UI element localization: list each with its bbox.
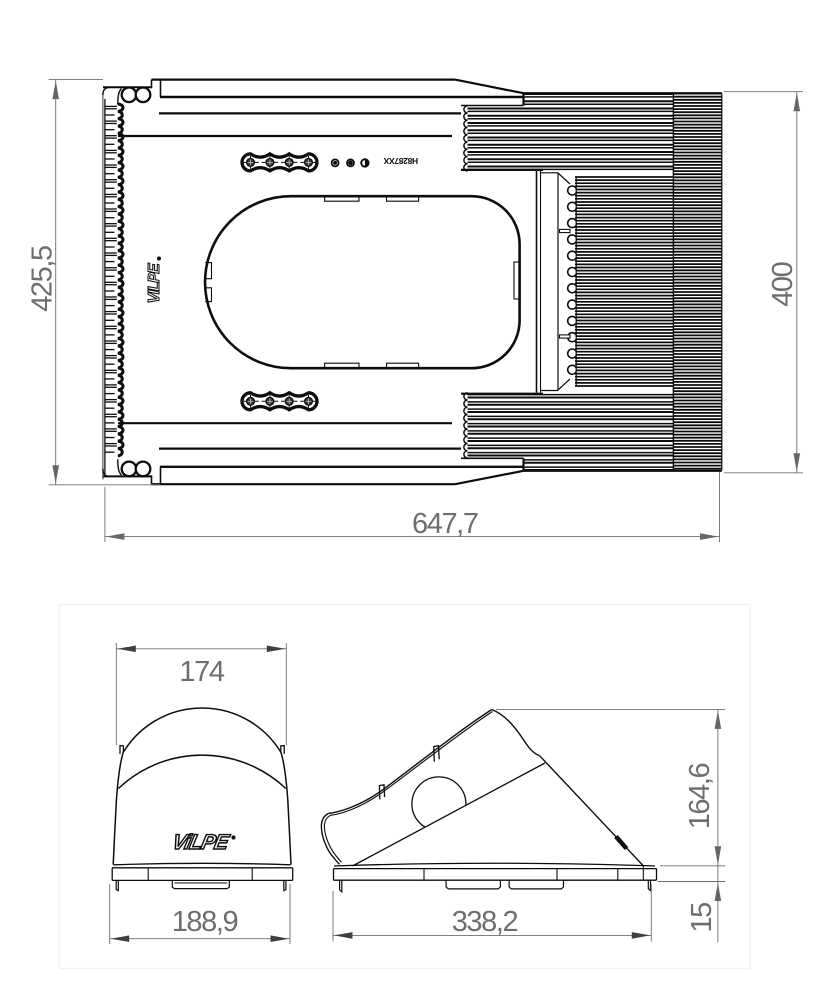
- svg-text:H8287XX: H8287XX: [383, 156, 418, 166]
- svg-text:164,6: 164,6: [684, 763, 716, 829]
- svg-text:338,2: 338,2: [452, 906, 518, 938]
- svg-text:174: 174: [179, 656, 224, 688]
- svg-text:VILPE: VILPE: [146, 263, 163, 304]
- svg-text:425,5: 425,5: [27, 246, 59, 312]
- svg-text:188,9: 188,9: [172, 906, 238, 938]
- svg-text:400: 400: [767, 262, 799, 306]
- svg-text:647,7: 647,7: [412, 508, 478, 540]
- svg-text:15: 15: [686, 903, 718, 933]
- svg-text:ViLPE: ViLPE: [170, 831, 232, 854]
